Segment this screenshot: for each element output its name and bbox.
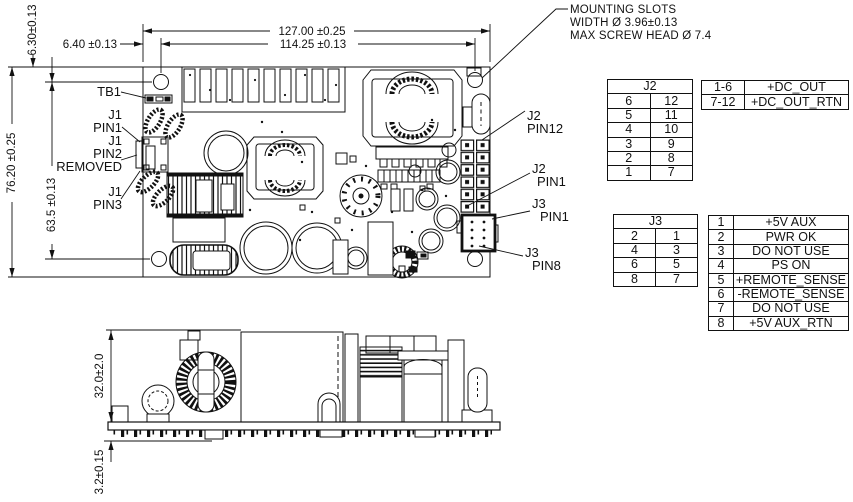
table-cell: PWR OK bbox=[733, 230, 848, 244]
table-row: 4PS ON bbox=[709, 259, 849, 273]
label-j3-pin1-b: PIN1 bbox=[540, 209, 569, 224]
j3-function-table: 1+5V AUX2PWR OK3DO NOT USE4PS ON5+REMOTE… bbox=[708, 215, 849, 331]
side-main-block bbox=[241, 332, 343, 422]
output-inductor bbox=[170, 245, 238, 275]
table-cell: 4 bbox=[614, 243, 656, 257]
pcb-side-view bbox=[108, 331, 500, 439]
j2-function-table: 1-6+DC_OUT7-12+DC_OUT_RTN bbox=[701, 80, 849, 110]
table-cell: 2 bbox=[608, 151, 651, 165]
table-cell: -REMOTE_SENSE bbox=[733, 287, 848, 301]
table-cell: 5 bbox=[656, 258, 698, 272]
tb1-terminal-block bbox=[145, 95, 172, 103]
pcb-module-block bbox=[173, 218, 225, 242]
table-cell: 11 bbox=[650, 108, 693, 122]
pcb-top-view bbox=[135, 67, 498, 278]
table-row: 65 bbox=[614, 258, 698, 272]
table-cell: 7 bbox=[656, 272, 698, 286]
dim-component-height: 32.0±2.0 bbox=[94, 354, 106, 399]
j1-connector bbox=[136, 137, 168, 172]
table-cell: 8 bbox=[614, 272, 656, 286]
pin-table: J321436587 bbox=[613, 214, 698, 287]
dim-board-width: 127.00 ±0.25 bbox=[278, 26, 345, 38]
table-cell: +REMOTE_SENSE bbox=[733, 273, 848, 287]
table-row: 511 bbox=[608, 108, 693, 122]
table-cell: 2 bbox=[709, 230, 734, 244]
table-row: 3DO NOT USE bbox=[709, 244, 849, 258]
mounting-note-line1: MOUNTING SLOTS bbox=[570, 4, 676, 16]
heatsink-finned bbox=[167, 173, 243, 217]
table-cell: 8 bbox=[709, 316, 734, 330]
table-row: 8+5V AUX_RTN bbox=[709, 316, 849, 330]
table-cell: 1 bbox=[656, 229, 698, 243]
table-cell: 1 bbox=[709, 216, 734, 230]
dim-board-height: 76.20 ±0.25 bbox=[6, 133, 18, 194]
side-right-parts bbox=[448, 340, 492, 422]
bottom-connector-3 bbox=[415, 430, 435, 437]
label-j2-pin1-b: PIN1 bbox=[537, 174, 566, 189]
table-cell: 2 bbox=[614, 229, 656, 243]
table-row: 2PWR OK bbox=[709, 230, 849, 244]
label-j1-pin3-b: PIN3 bbox=[93, 197, 122, 212]
bottom-connector-2 bbox=[320, 430, 342, 437]
pin-table: J2612511410392817 bbox=[607, 79, 693, 181]
table-row: 7DO NOT USE bbox=[709, 302, 849, 316]
table-cell: +5V AUX bbox=[733, 216, 848, 230]
table-cell: PS ON bbox=[733, 259, 848, 273]
input-filter-row bbox=[182, 67, 345, 112]
label-j3-pin8-b: PIN8 bbox=[532, 258, 561, 273]
table-row: 612 bbox=[608, 94, 693, 108]
mechanical-drawing-page: MOUNTING SLOTS WIDTH Ø 3.96±0.13 MAX SCR… bbox=[0, 0, 853, 502]
side-capacitor-cylinder bbox=[398, 351, 448, 422]
table-cell: DO NOT USE bbox=[733, 244, 848, 258]
table-cell: 4 bbox=[709, 259, 734, 273]
small-components bbox=[249, 68, 490, 275]
dim-edge-to-hole-v: 6.30±0.13 bbox=[27, 4, 39, 55]
label-j2-pin12-b: PIN12 bbox=[527, 121, 563, 136]
mounting-hole-top-left bbox=[154, 75, 169, 90]
table-cell: 1 bbox=[608, 166, 651, 180]
table-cell: 7-12 bbox=[702, 95, 745, 109]
table-cell: 7 bbox=[650, 166, 693, 180]
side-capacitor bbox=[142, 385, 174, 422]
pin-table: 1+5V AUX2PWR OK3DO NOT USE4PS ON5+REMOTE… bbox=[708, 215, 849, 331]
table-cell: 6 bbox=[614, 258, 656, 272]
table-cell: 8 bbox=[650, 151, 693, 165]
dim-hole-span-h: 114.25 ±0.13 bbox=[280, 39, 346, 51]
table-header: J2 bbox=[608, 80, 693, 94]
table-row: 5+REMOTE_SENSE bbox=[709, 273, 849, 287]
table-cell: 1-6 bbox=[702, 81, 745, 95]
table-cell: +DC_OUT_RTN bbox=[745, 95, 849, 109]
table-row: 17 bbox=[608, 166, 693, 180]
mounting-hole-bottom-right bbox=[468, 252, 483, 267]
mounting-note-line2: WIDTH Ø 3.96±0.13 bbox=[570, 17, 678, 29]
side-small-box bbox=[112, 406, 128, 422]
side-toroid bbox=[176, 352, 236, 412]
table-cell: 5 bbox=[608, 108, 651, 122]
table-row: 7-12+DC_OUT_RTN bbox=[702, 95, 849, 109]
table-cell: 12 bbox=[650, 94, 693, 108]
label-tb1: TB1 bbox=[97, 84, 121, 99]
label-j1-pin2-c: REMOVED bbox=[56, 159, 122, 174]
table-row: 6-REMOTE_SENSE bbox=[709, 287, 849, 301]
table-row: 21 bbox=[614, 229, 698, 243]
table-row: 87 bbox=[614, 272, 698, 286]
table-row: 1-6+DC_OUT bbox=[702, 81, 849, 95]
table-cell: 6 bbox=[608, 94, 651, 108]
table-cell: 9 bbox=[650, 137, 693, 151]
bottom-connector-1 bbox=[205, 430, 223, 439]
table-cell: DO NOT USE bbox=[733, 302, 848, 316]
j3-pin-table: J321436587 bbox=[613, 214, 698, 287]
mounting-hole-top-right bbox=[468, 73, 483, 88]
main-transformer bbox=[363, 70, 462, 146]
table-cell: 3 bbox=[709, 244, 734, 258]
mounting-hole-bottom-left bbox=[152, 252, 167, 267]
toroid-choke bbox=[340, 175, 382, 217]
table-cell: 7 bbox=[709, 302, 734, 316]
table-row: 1+5V AUX bbox=[709, 216, 849, 230]
table-cell: 5 bbox=[709, 273, 734, 287]
table-cell: 10 bbox=[650, 123, 693, 137]
pcb-board-edge bbox=[108, 422, 500, 430]
mounting-note-line3: MAX SCREW HEAD Ø 7.4 bbox=[570, 30, 712, 42]
table-header: J3 bbox=[614, 215, 698, 229]
table-cell: 6 bbox=[709, 287, 734, 301]
dim-hole-span-v: 63.5 ±0.13 bbox=[46, 178, 58, 232]
table-row: 39 bbox=[608, 137, 693, 151]
table-row: 28 bbox=[608, 151, 693, 165]
dim-pin-protrusion: 3.2±0.15 bbox=[94, 450, 106, 495]
table-row: 410 bbox=[608, 123, 693, 137]
table-cell: 3 bbox=[608, 137, 651, 151]
pin-table: 1-6+DC_OUT7-12+DC_OUT_RTN bbox=[701, 80, 849, 110]
table-cell: +5V AUX_RTN bbox=[733, 316, 848, 330]
dim-edge-to-hole-h: 6.40 ±0.13 bbox=[63, 39, 117, 51]
table-cell: +DC_OUT bbox=[745, 81, 849, 95]
j3-connector bbox=[457, 215, 498, 251]
table-cell: 3 bbox=[656, 243, 698, 257]
table-cell: 4 bbox=[608, 123, 651, 137]
secondary-transformer bbox=[247, 137, 323, 199]
j2-pin-table: J2612511410392817 bbox=[607, 79, 693, 181]
table-row: 43 bbox=[614, 243, 698, 257]
